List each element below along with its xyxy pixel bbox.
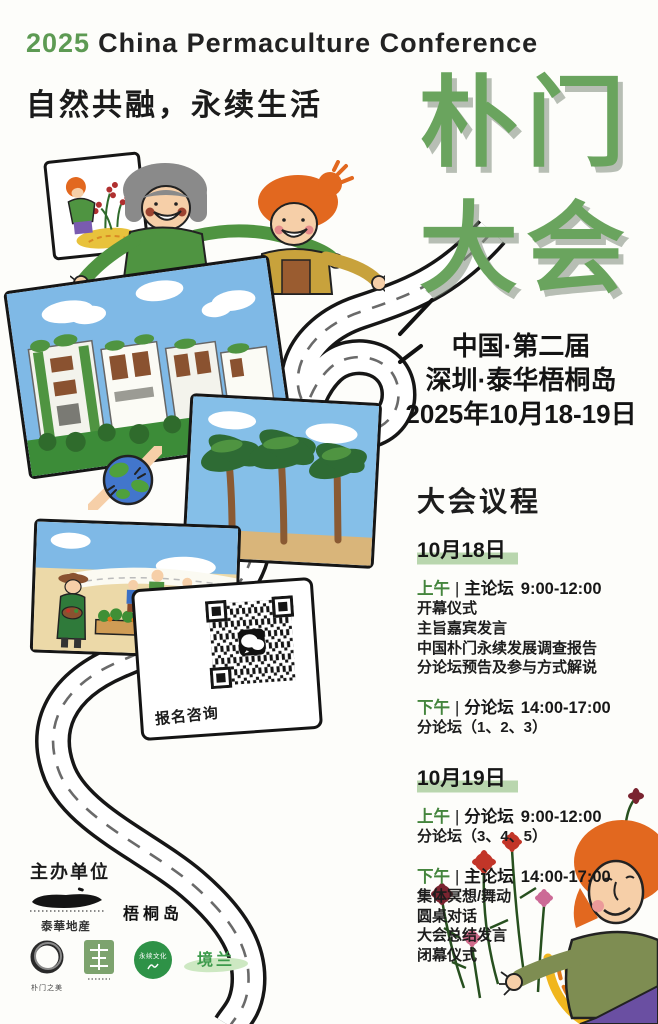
session-time: 14:00-17:00 (521, 868, 611, 886)
day2-afternoon-session: 下午|主论坛14:00-17:00 集体冥想/舞动 圆桌对话 大会总结发言 闭幕… (417, 863, 658, 966)
session-time: 9:00-12:00 (521, 808, 602, 826)
session-forum: 分论坛 (464, 808, 514, 826)
agenda-item: 开幕仪式 (417, 599, 658, 619)
session-header: 下午|主论坛14:00-17:00 (417, 863, 658, 887)
logo-taihua-estate: 泰華地産 (24, 886, 108, 934)
session-forum: 主论坛 (464, 868, 514, 886)
session-time: 9:00-12:00 (521, 580, 602, 598)
logo-enso-circle: 朴门之美 (24, 938, 70, 993)
day2-morning-session: 上午|分论坛9:00-12:00 分论坛（3、4、5） (417, 803, 658, 847)
separator: | (455, 868, 459, 886)
separator: | (455, 699, 459, 717)
conference-poster: 报名咨询 (0, 0, 658, 1024)
agenda-item: 分论坛预告及参与方式解说 (417, 658, 658, 678)
agenda-day-1: 10月18日 上午|主论坛9:00-12:00 开幕仪式 主旨嘉宾发言 中国朴门… (417, 534, 658, 738)
yongxu-logo-text: 永续文化 (139, 950, 167, 960)
event-dates: 2025年10月18-19日 (390, 397, 652, 431)
session-period: 上午 (417, 580, 450, 598)
poster-slogan: 自然共融，永续生活 (26, 80, 323, 124)
agenda-item: 主旨嘉宾发言 (417, 619, 658, 639)
session-period: 下午 (417, 699, 450, 717)
agenda-title: 大会议程 (417, 480, 658, 520)
title-en-text: China Permaculture Conference (98, 28, 538, 58)
event-edition: 中国·第二届 (390, 329, 652, 363)
event-info: 中国·第二届 深圳·泰华梧桐岛 2025年10月18-19日 (390, 329, 652, 431)
session-period: 下午 (417, 868, 450, 886)
agenda-day-2: 10月19日 上午|分论坛9:00-12:00 分论坛（3、4、5） 下午|主论… (417, 738, 658, 966)
event-venue: 深圳·泰华梧桐岛 (390, 363, 652, 397)
logo-wutong-island: 梧桐岛 (123, 900, 183, 924)
agenda-day-2-date: 10月19日 (417, 762, 518, 794)
agenda-day-1-date: 10月18日 (417, 534, 518, 566)
day1-morning-session: 上午|主论坛9:00-12:00 开幕仪式 主旨嘉宾发言 中国朴门永续发展调查报… (417, 575, 658, 678)
poster-title-en: 2025China Permaculture Conference (26, 28, 538, 59)
green-seal-icon (84, 940, 114, 982)
main-title-line1: 朴门 (408, 60, 644, 186)
taihua-boat-icon (26, 886, 106, 912)
main-title-line2: 大会 (408, 186, 644, 312)
agenda-item: 分论坛（3、4、5） (417, 827, 658, 847)
session-period: 上午 (417, 808, 450, 826)
hands-holding-earth-illustration (88, 446, 162, 510)
jinglan-logo-text: 境兰 (197, 952, 235, 969)
agenda-item: 大会总结发言 (417, 926, 658, 946)
agenda-item: 集体冥想/舞动 (417, 887, 658, 907)
session-time: 14:00-17:00 (521, 699, 611, 717)
session-forum: 主论坛 (464, 580, 514, 598)
agenda-item: 分论坛（1、2、3） (417, 718, 658, 738)
logo-yongxu-culture: 永续文化 (134, 941, 172, 979)
organizers-label: 主办单位 (30, 858, 110, 884)
separator: | (455, 580, 459, 598)
enso-circle-icon (26, 938, 68, 978)
logo-green-seal (84, 940, 114, 987)
year-label: 2025 (26, 28, 90, 58)
logo-jinglan: 境兰 (180, 946, 252, 970)
session-header: 上午|主论坛9:00-12:00 (417, 575, 658, 599)
agenda-item: 圆桌对话 (417, 907, 658, 927)
agenda-item: 中国朴门永续发展调查报告 (417, 639, 658, 659)
qr-registration-card: 报名咨询 (131, 577, 323, 741)
main-title-cn: 朴门 大会 (408, 60, 644, 312)
agenda-section: 大会议程 10月18日 上午|主论坛9:00-12:00 开幕仪式 主旨嘉宾发言… (417, 480, 658, 966)
qr-code (205, 595, 299, 689)
wechat-icon (238, 628, 266, 656)
taihua-name: 泰華地産 (24, 918, 108, 934)
session-header: 上午|分论坛9:00-12:00 (417, 803, 658, 827)
session-forum: 分论坛 (464, 699, 514, 717)
sprout-icon (147, 962, 159, 970)
qr-card-label: 报名咨询 (154, 702, 220, 730)
day1-afternoon-session: 下午|分论坛14:00-17:00 分论坛（1、2、3） (417, 694, 658, 738)
agenda-item: 闭幕仪式 (417, 946, 658, 966)
session-header: 下午|分论坛14:00-17:00 (417, 694, 658, 718)
separator: | (455, 808, 459, 826)
enso-logo-label: 朴门之美 (24, 983, 70, 993)
